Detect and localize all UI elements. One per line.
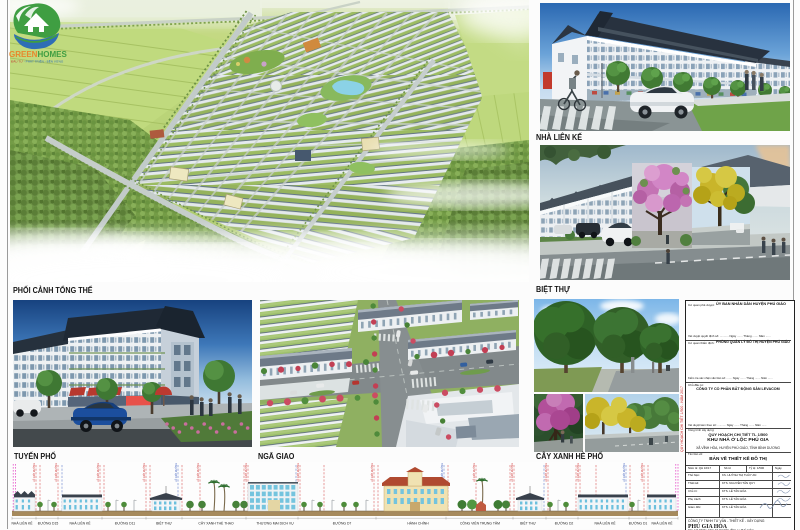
svg-text:NHÀ LIÊN KẾ: NHÀ LIÊN KẾ [11, 521, 33, 526]
svg-text:BIỆT THỰ: BIỆT THỰ [520, 521, 536, 526]
svg-text:GREENHOMES: GREENHOMES [9, 50, 67, 59]
svg-text:LỘ GIỚI ĐƯỜNG: LỘ GIỚI ĐƯỜNG [577, 463, 580, 482]
svg-text:LỘ GIỚI ĐƯỜNG: LỘ GIỚI ĐƯỜNG [175, 463, 178, 482]
svg-text:ĐƯỜNG D1: ĐƯỜNG D1 [629, 521, 648, 526]
svg-text:LỘ GIỚI ĐƯỜNG: LỘ GIỚI ĐƯỜNG [511, 463, 514, 482]
svg-text:ĐƯỜNG D11: ĐƯỜNG D11 [115, 521, 135, 526]
svg-text:LỘ GIỚI ĐƯỜNG: LỘ GIỚI ĐƯỜNG [245, 463, 248, 482]
svg-text:NHÀ LIÊN KẾ: NHÀ LIÊN KẾ [594, 521, 616, 526]
svg-text:THƯƠNG MẠI DỊCH VỤ: THƯƠNG MẠI DỊCH VỤ [256, 522, 294, 526]
svg-text:CÂY XANH THỂ THAO: CÂY XANH THỂ THAO [198, 521, 234, 526]
svg-text:LỘ GIỚI ĐƯỜNG: LỘ GIỚI ĐƯỜNG [545, 463, 548, 482]
svg-text:NHÀ LIÊN KẾ: NHÀ LIÊN KẾ [651, 521, 673, 526]
svg-text:LỘ GIỚI ĐƯỜNG: LỘ GIỚI ĐƯỜNG [197, 463, 200, 482]
svg-text:LỘ GIỚI ĐƯỜNG: LỘ GIỚI ĐƯỜNG [641, 463, 644, 482]
svg-text:HÀNH CHÍNH: HÀNH CHÍNH [407, 522, 429, 526]
svg-text:LỘ GIỚI ĐƯỜNG: LỘ GIỚI ĐƯỜNG [143, 463, 146, 482]
svg-text:LỘ GIỚI ĐƯỜNG: LỘ GIỚI ĐƯỜNG [55, 463, 58, 482]
svg-text:ĐƯỜNG D2: ĐƯỜNG D2 [555, 521, 574, 526]
svg-text:LỘ GIỚI ĐƯỜNG: LỘ GIỚI ĐƯỜNG [97, 463, 100, 482]
svg-text:CÔNG VIÊN TRUNG TÂM: CÔNG VIÊN TRUNG TÂM [460, 521, 500, 526]
svg-text:ĐƯỜNG D15: ĐƯỜNG D15 [38, 521, 59, 526]
svg-text:ĐƯỜNG D7: ĐƯỜNG D7 [333, 521, 352, 526]
svg-text:NHÀ LIÊN KẾ: NHÀ LIÊN KẾ [69, 521, 91, 526]
svg-text:BIỆT THỰ: BIỆT THỰ [156, 521, 172, 526]
svg-text:LỘ GIỚI ĐƯỜNG: LỘ GIỚI ĐƯỜNG [473, 463, 476, 482]
svg-text:ĐẦU TƯ - PHÁT TRIỂN - BỀN VỮNG: ĐẦU TƯ - PHÁT TRIỂN - BỀN VỮNG [11, 59, 64, 64]
svg-text:LỘ GIỚI ĐƯỜNG: LỘ GIỚI ĐƯỜNG [297, 463, 300, 482]
svg-text:LỘ GIỚI ĐƯỜNG: LỘ GIỚI ĐƯỜNG [33, 463, 36, 482]
svg-text:LỘ GIỚI ĐƯỜNG: LỘ GIỚI ĐƯỜNG [623, 463, 626, 482]
svg-text:LỘ GIỚI ĐƯỜNG: LỘ GIỚI ĐƯỜNG [371, 463, 374, 482]
